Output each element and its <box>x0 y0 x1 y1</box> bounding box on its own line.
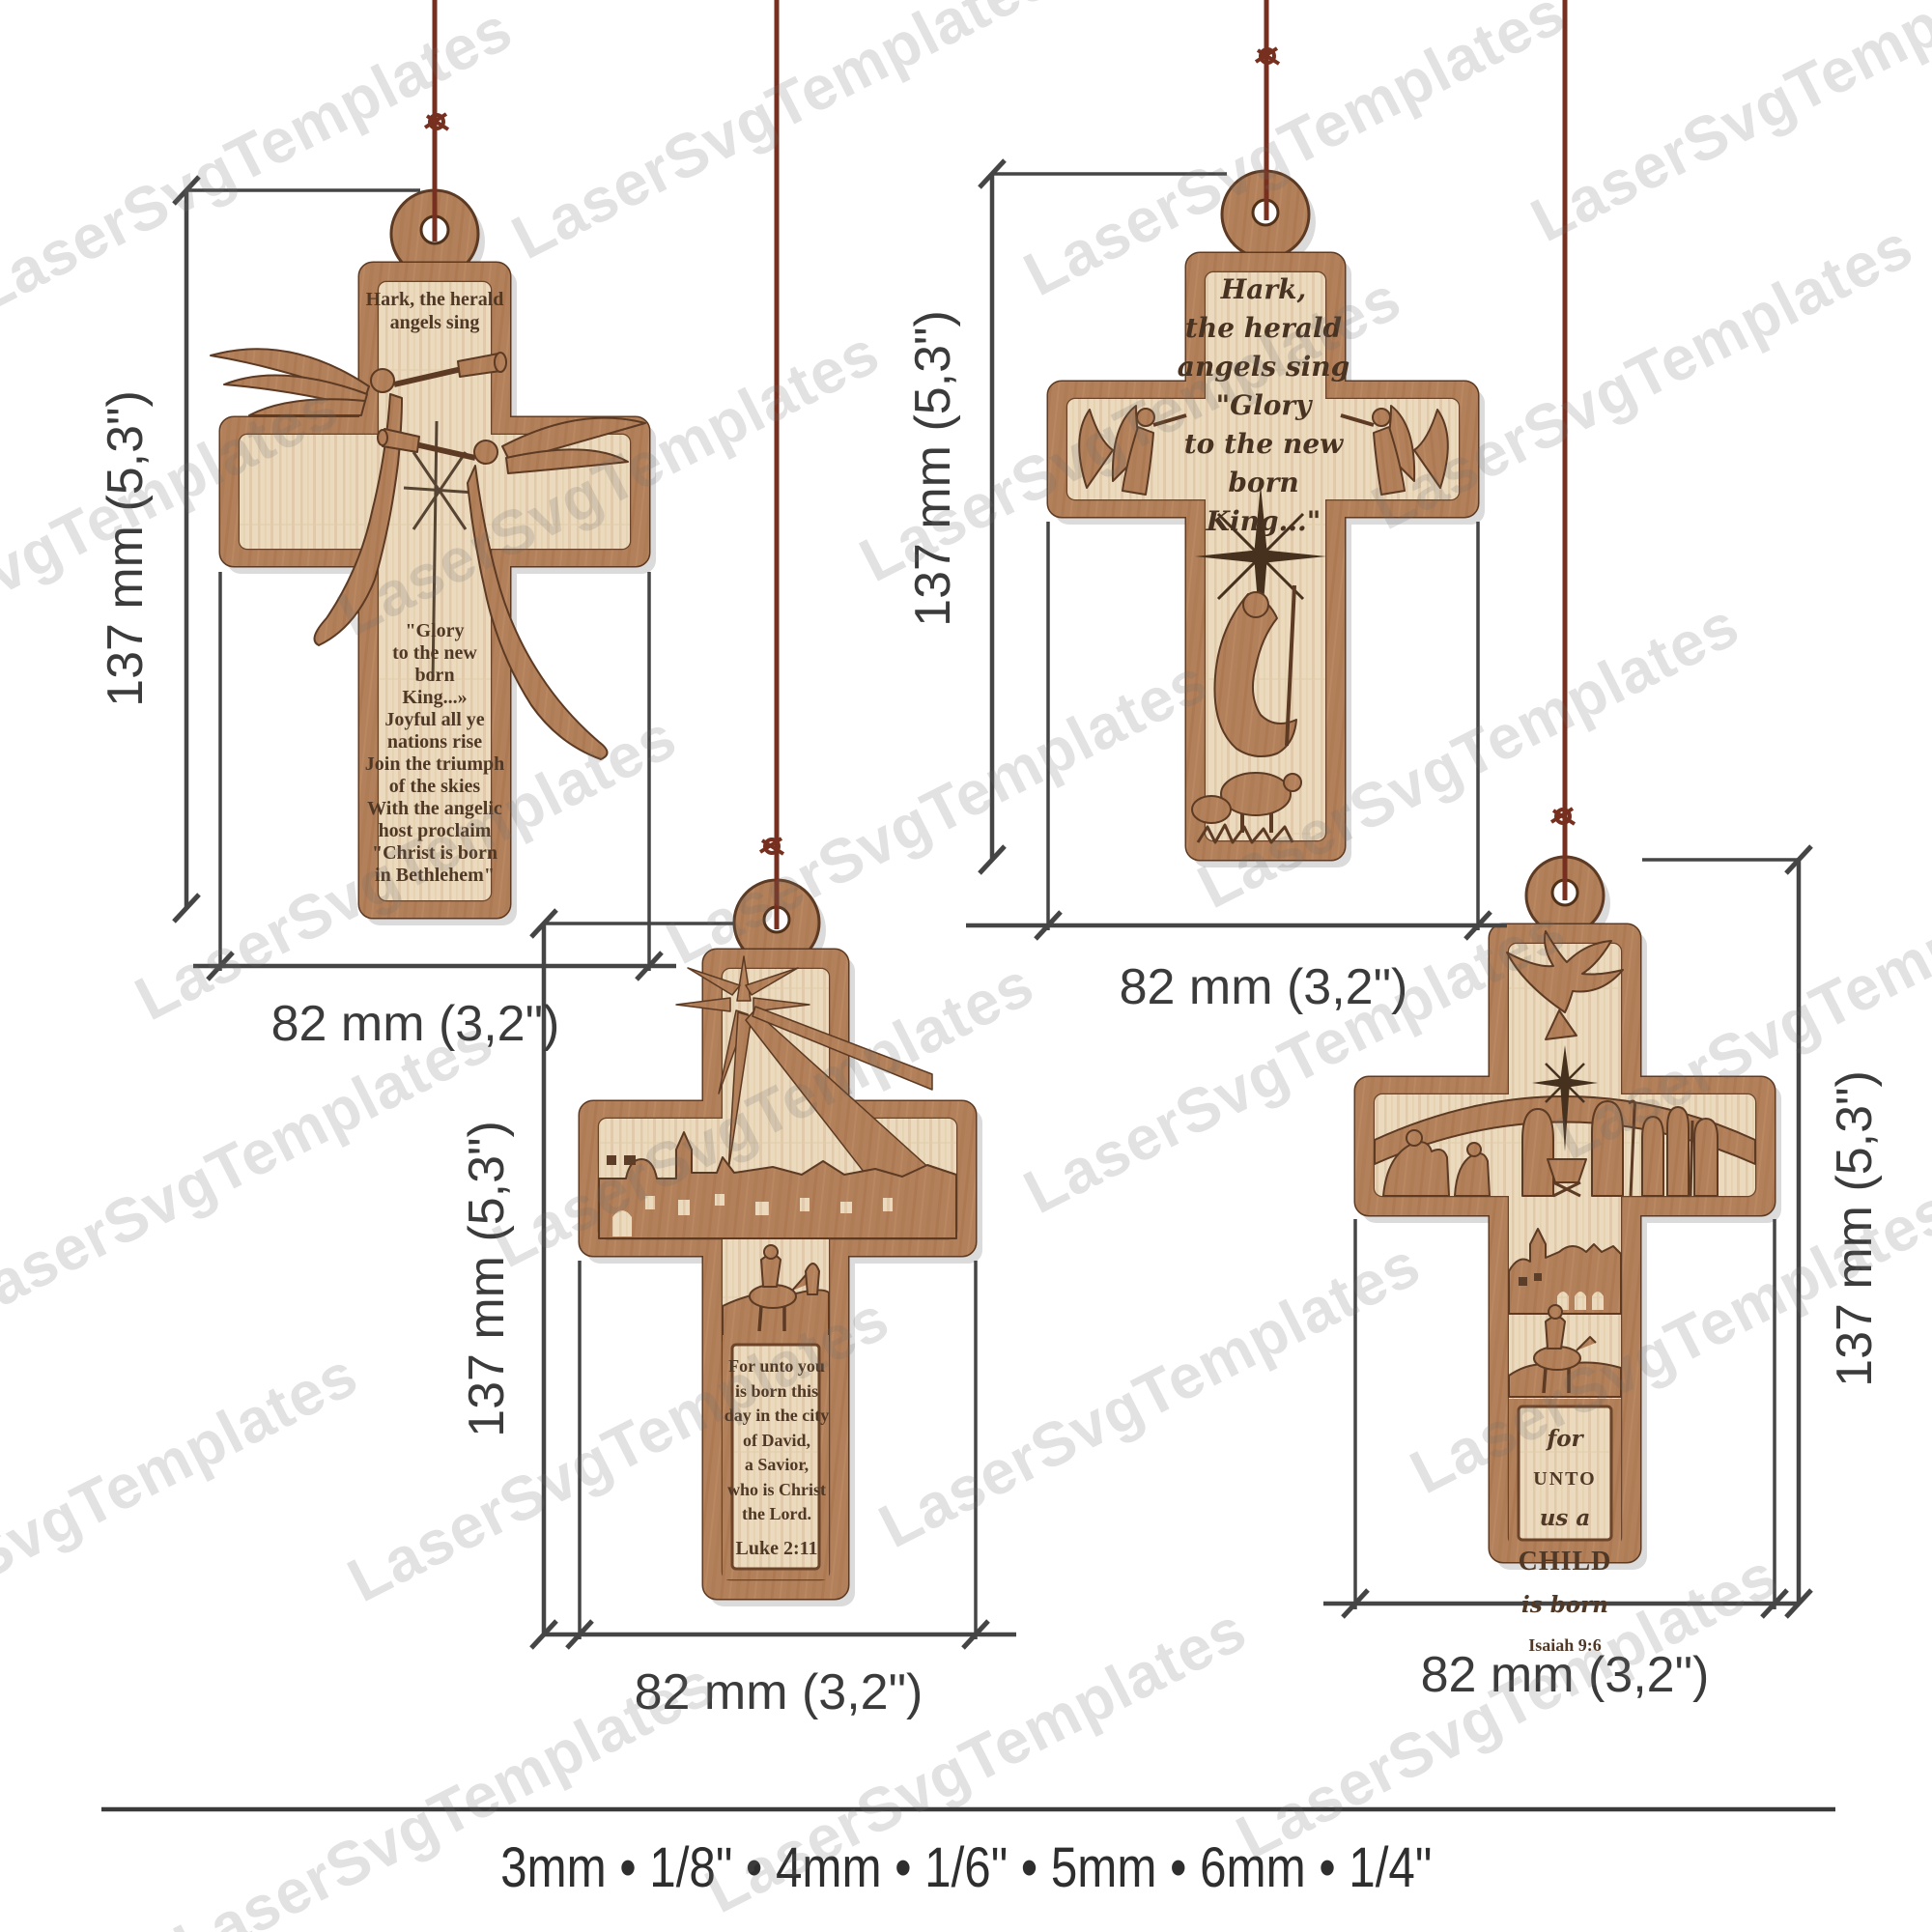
string-knot <box>1256 48 1279 64</box>
string-knot <box>1551 809 1575 824</box>
cross4-word-for: for <box>1503 1428 1627 1451</box>
cross2-verse-text: Hark, the herald angels sing "Glory to t… <box>1171 270 1356 541</box>
ornament-illustration <box>0 0 1932 1932</box>
cross4-word-is-born: is born <box>1503 1594 1627 1617</box>
width-dimension-label: 82 mm (3,2") <box>271 995 560 1053</box>
height-dimension-label: 137 mm (5,3") <box>97 390 155 707</box>
cross4-word-child: CHILD <box>1503 1548 1627 1577</box>
string-knot <box>760 838 783 854</box>
cross3-verse-text: For unto you is born this day in the cit… <box>717 1354 837 1527</box>
height-dimension-label: 137 mm (5,3") <box>1826 1070 1884 1387</box>
material-thickness-text: 3mm • 1/8" • 4mm • 1/6" • 5mm • 6mm • 1/… <box>500 1835 1432 1900</box>
width-dimension-label: 82 mm (3,2") <box>1120 958 1408 1016</box>
width-dimension-label: 82 mm (3,2") <box>635 1663 923 1721</box>
cross4-word-unto: UNTO <box>1503 1468 1627 1490</box>
cross1-heading-text: Hark, the herald angels sing <box>340 288 529 334</box>
cross4-verse-text: for UNTO us a CHILD is born Isaiah 9:6 <box>1503 1410 1627 1673</box>
cross3-verse-reference: Luke 2:11 <box>717 1538 837 1560</box>
height-dimension-label: 137 mm (5,3") <box>458 1121 516 1437</box>
width-dimension-label: 82 mm (3,2") <box>1421 1646 1710 1704</box>
material-thickness-options: 3mm • 1/8" • 4mm • 1/6" • 5mm • 6mm • 1/… <box>0 1835 1932 1900</box>
cross4-word-us-a: us a <box>1503 1507 1627 1530</box>
dimension-height-cross4 <box>1642 846 1811 1617</box>
product-image: Hark, the herald angels sing "Glory to t… <box>0 0 1932 1932</box>
cross1-verse-text: "Glory to the new born King...» Joyful a… <box>328 620 541 887</box>
string-knot <box>425 114 448 129</box>
height-dimension-label: 137 mm (5,3") <box>904 310 962 627</box>
